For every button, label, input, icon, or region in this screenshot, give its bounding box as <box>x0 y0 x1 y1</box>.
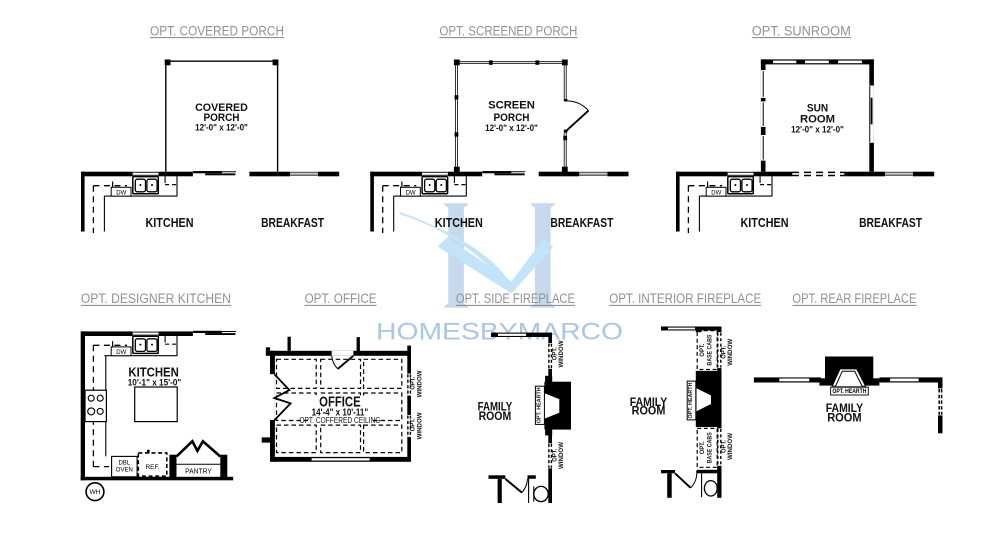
svg-text:KITCHEN: KITCHEN <box>435 216 483 230</box>
svg-text:BREAKFAST: BREAKFAST <box>859 216 922 230</box>
svg-text:OPT. SCREENED PORCH: OPT. SCREENED PORCH <box>439 23 577 39</box>
svg-text:DBL: DBL <box>118 461 130 467</box>
svg-text:OPT. OFFICE: OPT. OFFICE <box>305 291 377 307</box>
svg-text:KITCHEN: KITCHEN <box>146 216 194 230</box>
svg-text:OPT.: OPT. <box>699 441 706 454</box>
svg-text:BREAKFAST: BREAKFAST <box>261 216 324 230</box>
svg-text:ROOM: ROOM <box>479 409 512 423</box>
svg-text:WINDOW: WINDOW <box>558 441 565 469</box>
svg-text:OPT. INTERIOR FIREPLACE: OPT. INTERIOR FIREPLACE <box>609 291 761 307</box>
svg-text:WINDOW: WINDOW <box>727 432 734 460</box>
svg-text:OPT. REAR FIREPLACE: OPT. REAR FIREPLACE <box>792 291 916 307</box>
svg-text:12'-0" x 12'-0": 12'-0" x 12'-0" <box>791 124 844 134</box>
svg-text:ROOM: ROOM <box>632 404 666 418</box>
svg-text:OVEN: OVEN <box>116 468 133 474</box>
svg-text:DW: DW <box>116 350 126 356</box>
svg-text:SCREEN: SCREEN <box>488 100 535 112</box>
svg-text:12'-0" x 12'-0": 12'-0" x 12'-0" <box>195 122 248 132</box>
svg-text:OPT. HEARTH: OPT. HEARTH <box>536 387 542 423</box>
svg-text:BREAKFAST: BREAKFAST <box>550 216 613 230</box>
svg-text:PORCH: PORCH <box>494 112 530 124</box>
svg-text:WINDOW: WINDOW <box>416 412 423 440</box>
svg-text:OPT. HEARTH: OPT. HEARTH <box>832 388 866 395</box>
svg-text:WINDOW: WINDOW <box>558 340 565 368</box>
svg-text:HOMESBYMARCO: HOMESBYMARCO <box>376 318 623 345</box>
svg-text:DW: DW <box>116 190 126 196</box>
svg-text:REF.: REF. <box>145 464 159 471</box>
svg-text:DW: DW <box>406 190 416 196</box>
svg-text:DW: DW <box>711 190 721 196</box>
svg-text:10'-1" x 15'-0": 10'-1" x 15'-0" <box>128 377 182 387</box>
svg-text:PANTRY: PANTRY <box>185 467 212 476</box>
svg-text:OPT. COFFERED CEILING: OPT. COFFERED CEILING <box>299 416 380 425</box>
svg-text:BASE CABS: BASE CABS <box>706 432 713 463</box>
svg-text:OPT. SIDE FIREPLACE: OPT. SIDE FIREPLACE <box>456 291 575 307</box>
svg-text:12'-0" x 12'-0": 12'-0" x 12'-0" <box>485 123 538 133</box>
svg-text:OPT.: OPT. <box>699 344 706 357</box>
svg-text:BASE CABS: BASE CABS <box>706 334 713 365</box>
svg-text:KITCHEN: KITCHEN <box>741 216 789 230</box>
svg-text:OPT. COVERED PORCH: OPT. COVERED PORCH <box>150 23 284 39</box>
svg-text:OPT. DESIGNER KITCHEN: OPT. DESIGNER KITCHEN <box>81 291 231 307</box>
svg-text:ROOM: ROOM <box>827 410 862 424</box>
svg-text:WINDOW: WINDOW <box>727 338 734 366</box>
svg-text:OPT. HEARTH: OPT. HEARTH <box>688 383 694 419</box>
svg-text:WH: WH <box>90 489 101 496</box>
svg-text:OPT. SUNROOM: OPT. SUNROOM <box>752 23 851 39</box>
svg-text:WINDOW: WINDOW <box>416 370 423 398</box>
